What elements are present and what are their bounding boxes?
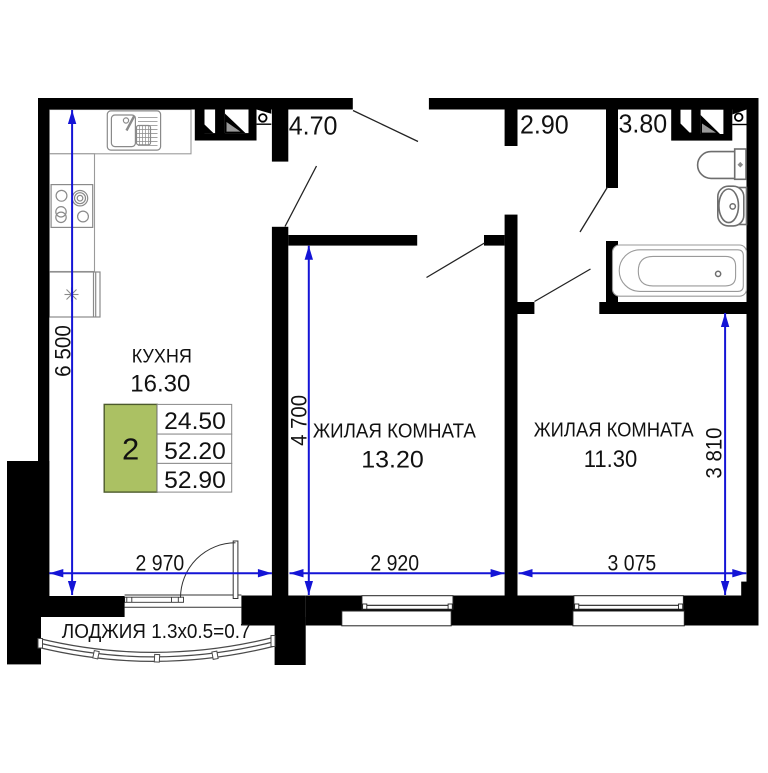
svg-text:16.30: 16.30	[130, 371, 190, 398]
svg-text:6 500: 6 500	[51, 325, 76, 377]
svg-text:11.30: 11.30	[584, 446, 638, 473]
svg-text:ЖИЛАЯ КОМНАТА: ЖИЛАЯ КОМНАТА	[313, 420, 477, 442]
svg-text:4 700: 4 700	[286, 395, 311, 446]
svg-text:3 075: 3 075	[608, 550, 657, 575]
svg-text:3 810: 3 810	[701, 428, 726, 479]
svg-text:2 970: 2 970	[136, 550, 185, 575]
svg-text:2 920: 2 920	[370, 550, 419, 575]
svg-text:ЛОДЖИЯ 1.3x0.5=0.7: ЛОДЖИЯ 1.3x0.5=0.7	[62, 620, 251, 643]
svg-text:3.80: 3.80	[619, 109, 668, 139]
svg-text:13.20: 13.20	[361, 446, 424, 473]
svg-text:4.70: 4.70	[289, 111, 338, 141]
svg-text:52.90: 52.90	[164, 467, 226, 494]
svg-text:2: 2	[122, 432, 139, 467]
svg-text:24.50: 24.50	[164, 408, 226, 435]
svg-text:КУХНЯ: КУХНЯ	[132, 346, 192, 368]
svg-text:52.20: 52.20	[164, 438, 226, 465]
svg-text:2.90: 2.90	[520, 109, 569, 139]
svg-text:ЖИЛАЯ КОМНАТА: ЖИЛАЯ КОМНАТА	[534, 420, 695, 442]
